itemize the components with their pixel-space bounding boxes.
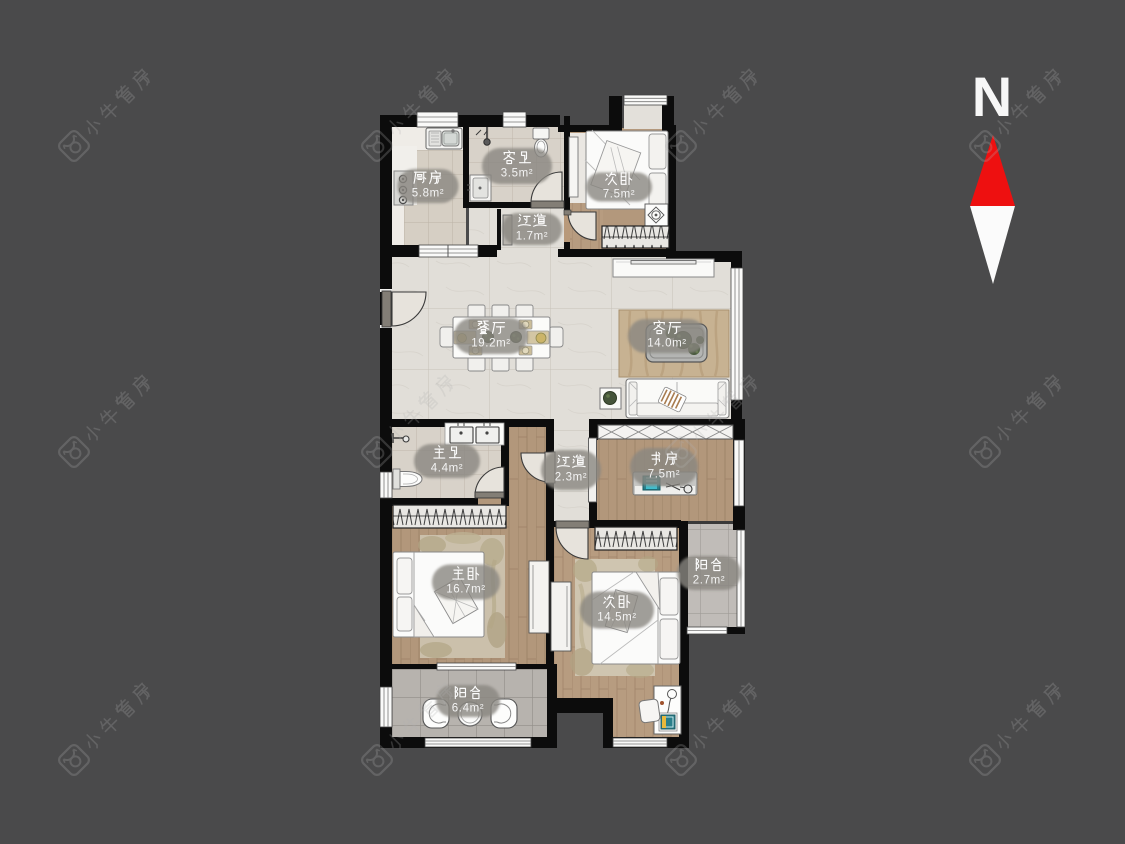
svg-text:19.2m²: 19.2m² bbox=[471, 338, 510, 350]
svg-text:2.7m²: 2.7m² bbox=[693, 575, 725, 587]
svg-text:14.0m²: 14.0m² bbox=[647, 338, 686, 350]
svg-text:6.4m²: 6.4m² bbox=[452, 703, 484, 715]
svg-text:2.3m²: 2.3m² bbox=[555, 472, 587, 484]
svg-text:4.4m²: 4.4m² bbox=[431, 463, 463, 475]
svg-text:1.7m²: 1.7m² bbox=[516, 231, 548, 243]
svg-text:16.7m²: 16.7m² bbox=[446, 584, 485, 596]
svg-text:7.5m²: 7.5m² bbox=[603, 189, 635, 201]
svg-text:3.5m²: 3.5m² bbox=[501, 168, 533, 180]
svg-text:14.5m²: 14.5m² bbox=[597, 612, 636, 624]
svg-text:7.5m²: 7.5m² bbox=[648, 469, 680, 481]
svg-text:5.8m²: 5.8m² bbox=[412, 188, 444, 200]
svg-text:N: N bbox=[972, 65, 1012, 128]
